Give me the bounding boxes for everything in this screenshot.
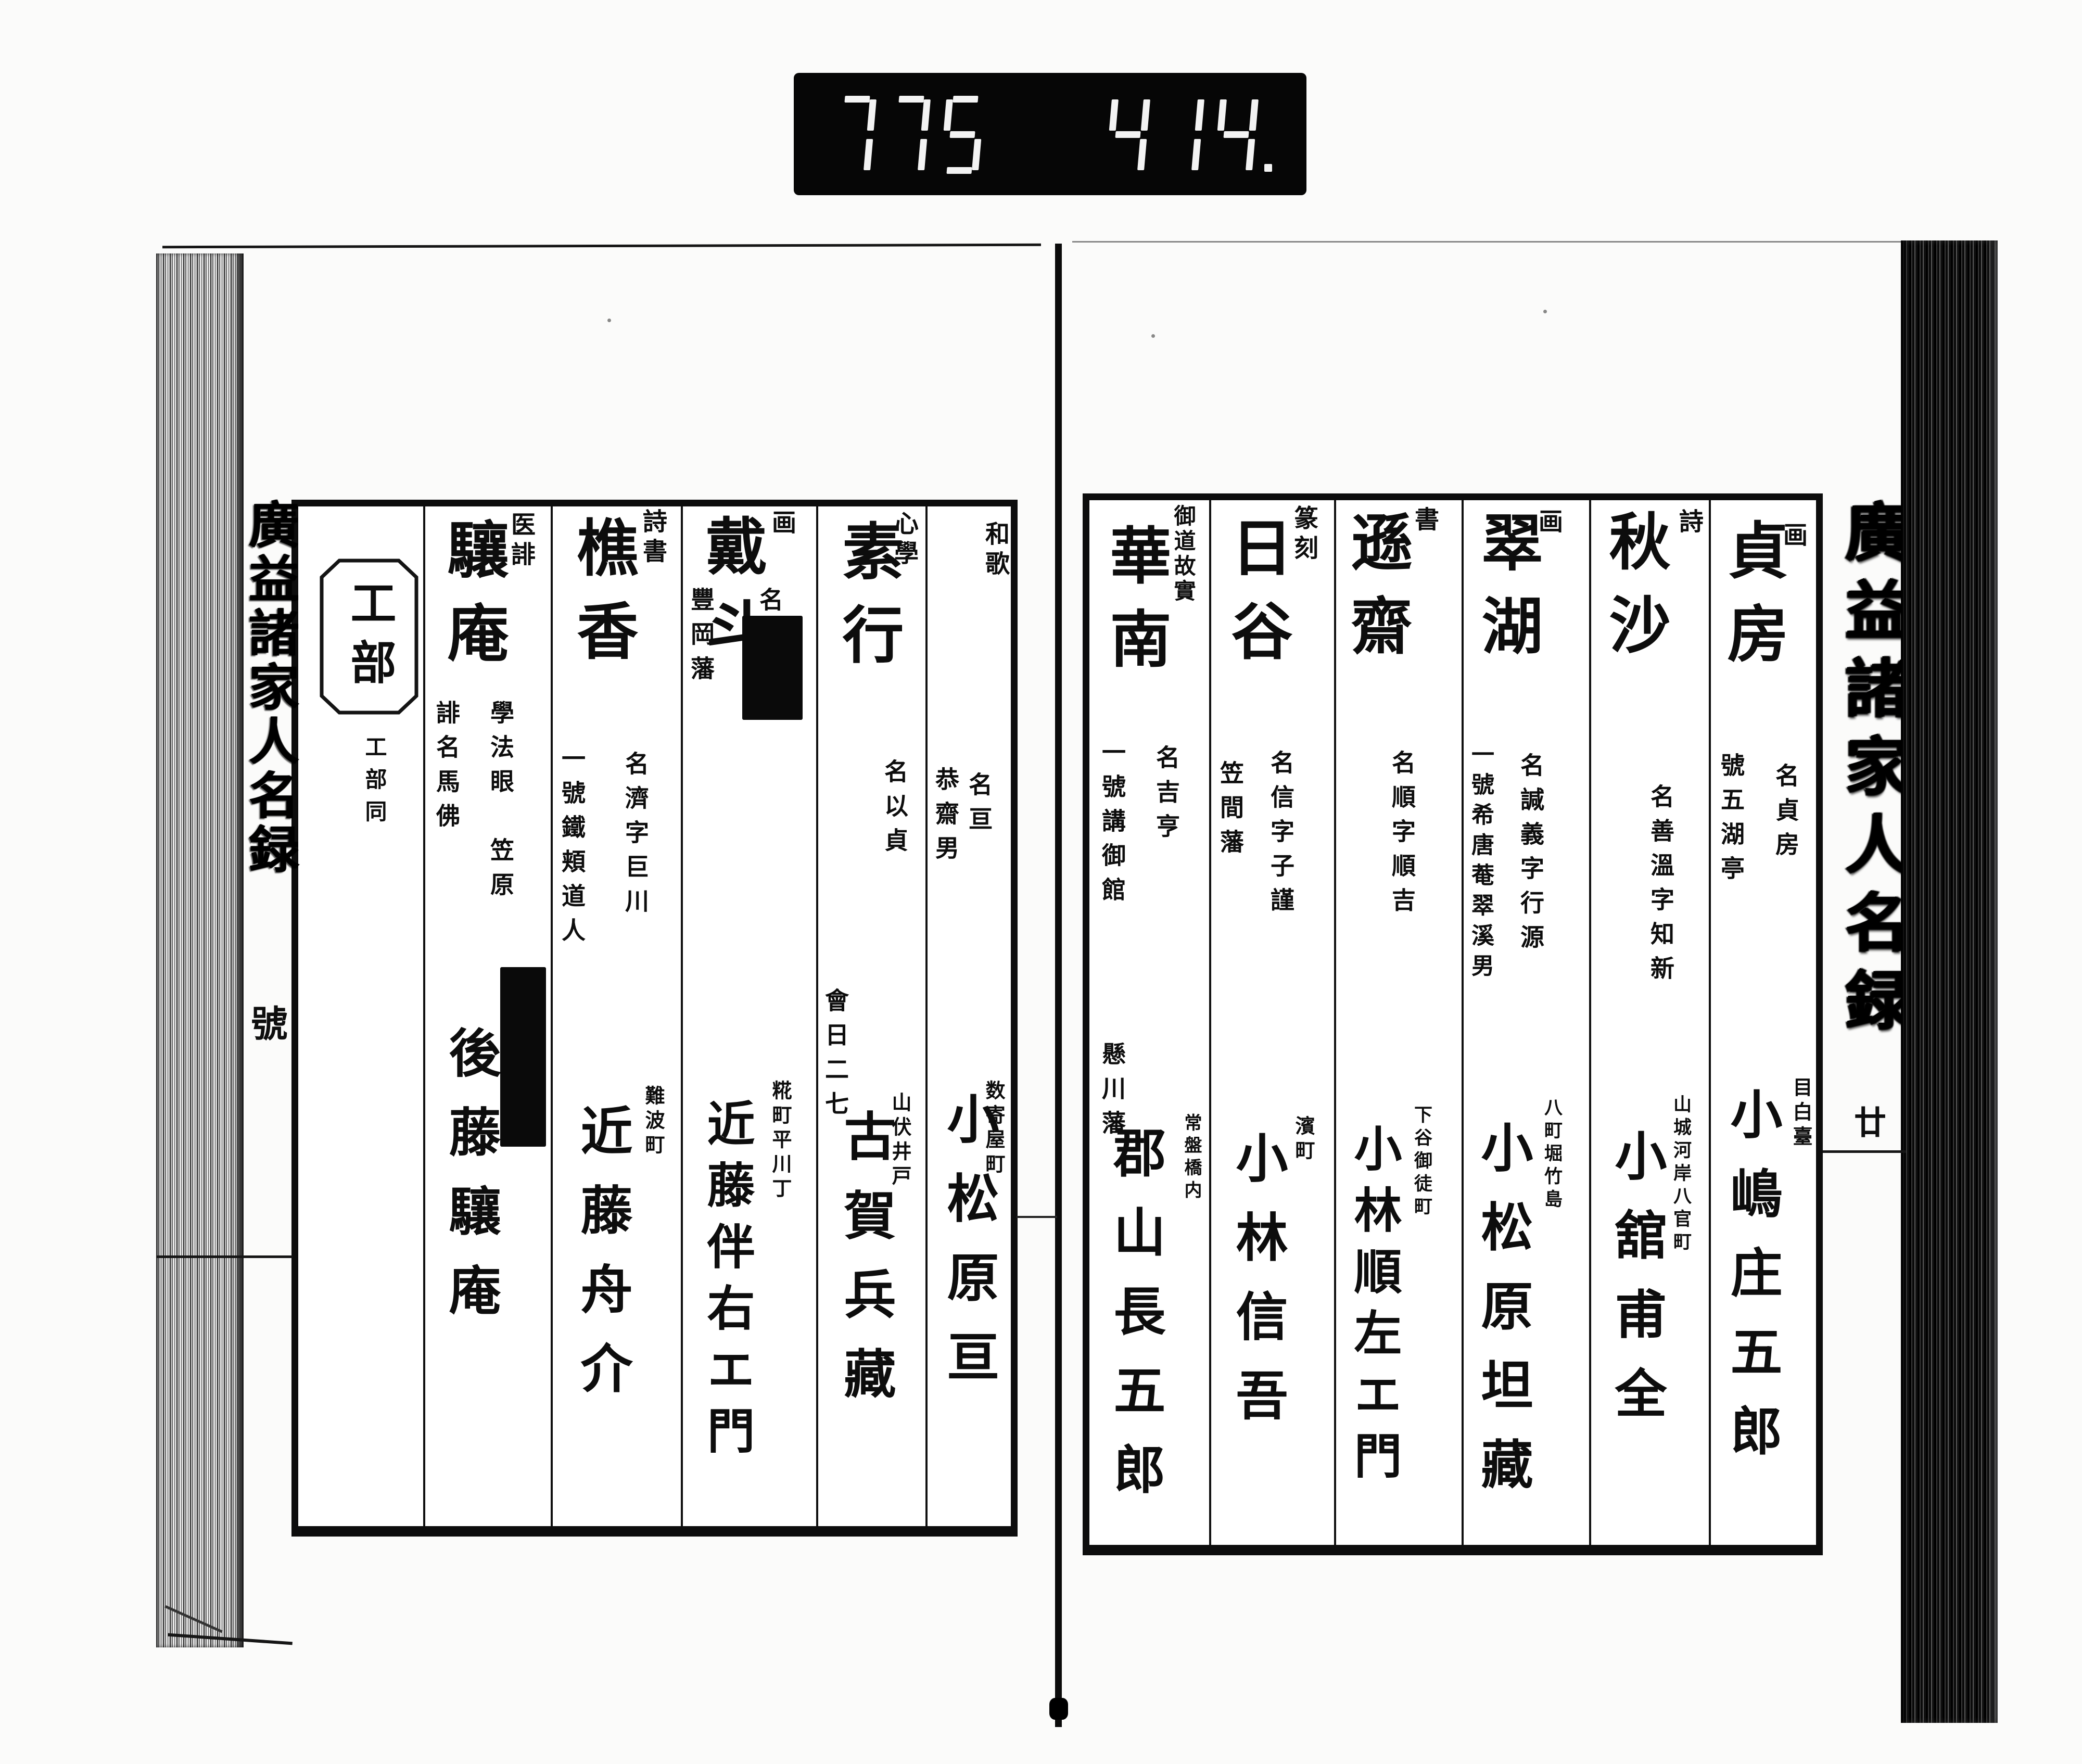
left-margin-mark: 號 [240,1005,293,1041]
person-name: 小松原坦藏 [1476,1121,1528,1516]
category-label: 和歌 [983,521,1007,580]
person-name: 古賀兵藏 [839,1109,891,1426]
section-cartouche: 工部 [320,559,418,715]
artist-name: 秋沙 [1604,510,1665,676]
entry-column-suiko: 画 翠湖 名諴義字行源 一號希唐菴翠溪男 八町堀竹島 小松原坦藏 [1462,500,1589,1545]
entry-column-sadafusa: 画 貞房 名貞房 號五湖亭 目白臺 小嶋庄五郎 [1709,500,1816,1545]
left-margin-tick [156,1255,293,1258]
entry-column-shusa: 詩 秋沙 名善溫字知新 山城河岸八官町 小舘甫全 [1589,500,1709,1545]
top-edge-line-left [162,244,1041,248]
right-page: 画 貞房 名貞房 號五湖亭 目白臺 小嶋庄五郎 詩 秋沙 名善溫字知新 山城河岸… [1083,493,1823,1555]
artist-name: 貞房 [1722,518,1783,685]
address: 山城河岸八官町 [1671,1095,1690,1255]
person-name: 小林順左エ門 [1350,1124,1398,1492]
right-margin-mark: 廿 [1844,1106,1890,1138]
section-column-kobu: 工部 工部同 [305,506,423,1526]
artist-note-right: 名亘 [967,772,991,841]
scan-speck [607,319,611,322]
artist-name: 日谷 [1226,516,1287,682]
entry-column-sonsai: 書 遜齋 名順字順吉 下谷御徒町 小林順左エ門 [1334,500,1462,1545]
artist-note-right: 名順字順吉 [1390,750,1414,922]
center-margin-tick [1017,1216,1057,1218]
category-label: 詩 [1677,509,1701,538]
left-page: 和歌 名亘 恭齋男 数寄屋町 小松原亘 心學 素行 名以貞 會日二七 山伏井戸 … [291,500,1018,1537]
artist-note-right: 名善溫字知新 [1649,784,1673,990]
artist-note-left: 一號希唐菴翠溪男 [1469,742,1492,984]
address: 下谷御徒町 [1412,1105,1430,1220]
artist-note-right: 學法眼 笠原 [489,700,513,906]
person-name: 小舘甫全 [1610,1129,1662,1445]
address: 常盤橋内 [1183,1113,1200,1203]
entry-column-taito: 画 戴斗 名 豐岡藩 糀町平川丁 近藤伴右エ門 [681,506,816,1526]
counter-left-value [827,95,989,174]
artist-note-left: 恭齋男 [934,767,958,870]
scanned-book-page: 廣益諸家人名録 號 廣益諸家人名録 廿 和歌 名亘 恭齋男 数寄屋町 小松原亘 … [0,0,2082,1764]
artist-note-left: 一號講御館 [1100,740,1124,911]
right-margin-tick [1823,1150,1906,1153]
artist-name: 遜齋 [1345,511,1407,677]
artist-name: 翠湖 [1476,511,1538,677]
artist-note-left: 號五湖亭 [1719,753,1743,890]
entry-column-nikkoku: 篆刻 日谷 名信字子謹 笠間藩 濱町 小林信吾 [1209,500,1334,1545]
artist-note-right: 名貞房 [1774,763,1798,866]
category-label: 篆刻 [1291,505,1316,565]
redaction-box [742,616,803,720]
book-binding-gutter [1901,240,1998,1723]
fold-bottom-mark [1049,1698,1068,1720]
address: 難波町 [643,1085,663,1159]
entry-column-waka: 和歌 名亘 恭齋男 数寄屋町 小松原亘 [925,506,1018,1526]
artist-name: 素行 [837,519,898,686]
person-name: 近藤舟介 [576,1104,628,1420]
artist-name: 驤庵 [442,518,503,684]
artist-note-left: 豐岡藩 [689,587,713,690]
artist-note-right: 名濟字巨川 [624,751,648,923]
address: 八町堀竹島 [1542,1098,1560,1212]
category-label: 医誹 [509,512,533,571]
person-name: 小松原亘 [942,1092,994,1408]
artist-note-right: 名以貞 [883,759,907,862]
left-margin-book-title: 廣益諸家人名録 [233,499,306,878]
category-label: 御道故實 [1172,504,1194,604]
person-name: 小嶋庄五郎 [1725,1087,1778,1483]
artist-name: 華南 [1105,524,1166,690]
center-fold-line [1055,244,1062,1727]
scan-speck [1543,310,1547,313]
category-label: 書 [1412,506,1437,536]
category-label: 画 [769,510,794,539]
address: 濱町 [1293,1115,1313,1164]
counter-right-value [1101,95,1273,174]
film-counter-display [794,73,1306,195]
book-left-page-edges [156,253,244,1647]
artist-note-left: 誹名馬佛 [435,700,459,837]
top-edge-line-right [1072,241,1901,243]
entry-column-joan: 医誹 驤庵 學法眼 笠原 誹名馬佛 後藤驤庵 [423,506,551,1526]
scan-speck [1151,334,1155,338]
entry-column-soko: 心學 素行 名以貞 會日二七 山伏井戸 古賀兵藏 [816,506,925,1526]
entry-column-kanan: 御道故實 華南 名吉亨 一號講御館 懸川藩 常盤橋内 郡山長五郎 [1096,500,1209,1545]
person-name: 小林信吾 [1231,1131,1283,1448]
artist-name: 樵香 [572,516,633,682]
section-note: 工部同 [363,735,385,832]
artist-note-left: 會日二七 [823,988,847,1125]
artist-note-left: 笠間藩 [1218,760,1242,864]
redaction-box [500,967,546,1147]
person-name: 郡山長五郎 [1109,1126,1161,1521]
artist-note-left: 一號鐵頬道人 [560,746,584,952]
section-title: 工部 [347,579,392,698]
address: 目白臺 [1791,1077,1811,1150]
entry-column-shoko: 詩書 樵香 名濟字巨川 一號鐵頬道人 難波町 近藤舟介 [551,506,681,1526]
category-label: 詩書 [640,509,665,568]
person-name: 近藤伴右エ門 [703,1099,751,1467]
person-name: 後藤驤庵 [444,1026,496,1342]
address: 糀町平川丁 [770,1080,790,1202]
artist-note-right: 名諴義字行源 [1519,753,1543,959]
artist-note-right: 名信字子謹 [1269,750,1293,922]
artist-note-right: 名吉亨 [1154,745,1178,848]
